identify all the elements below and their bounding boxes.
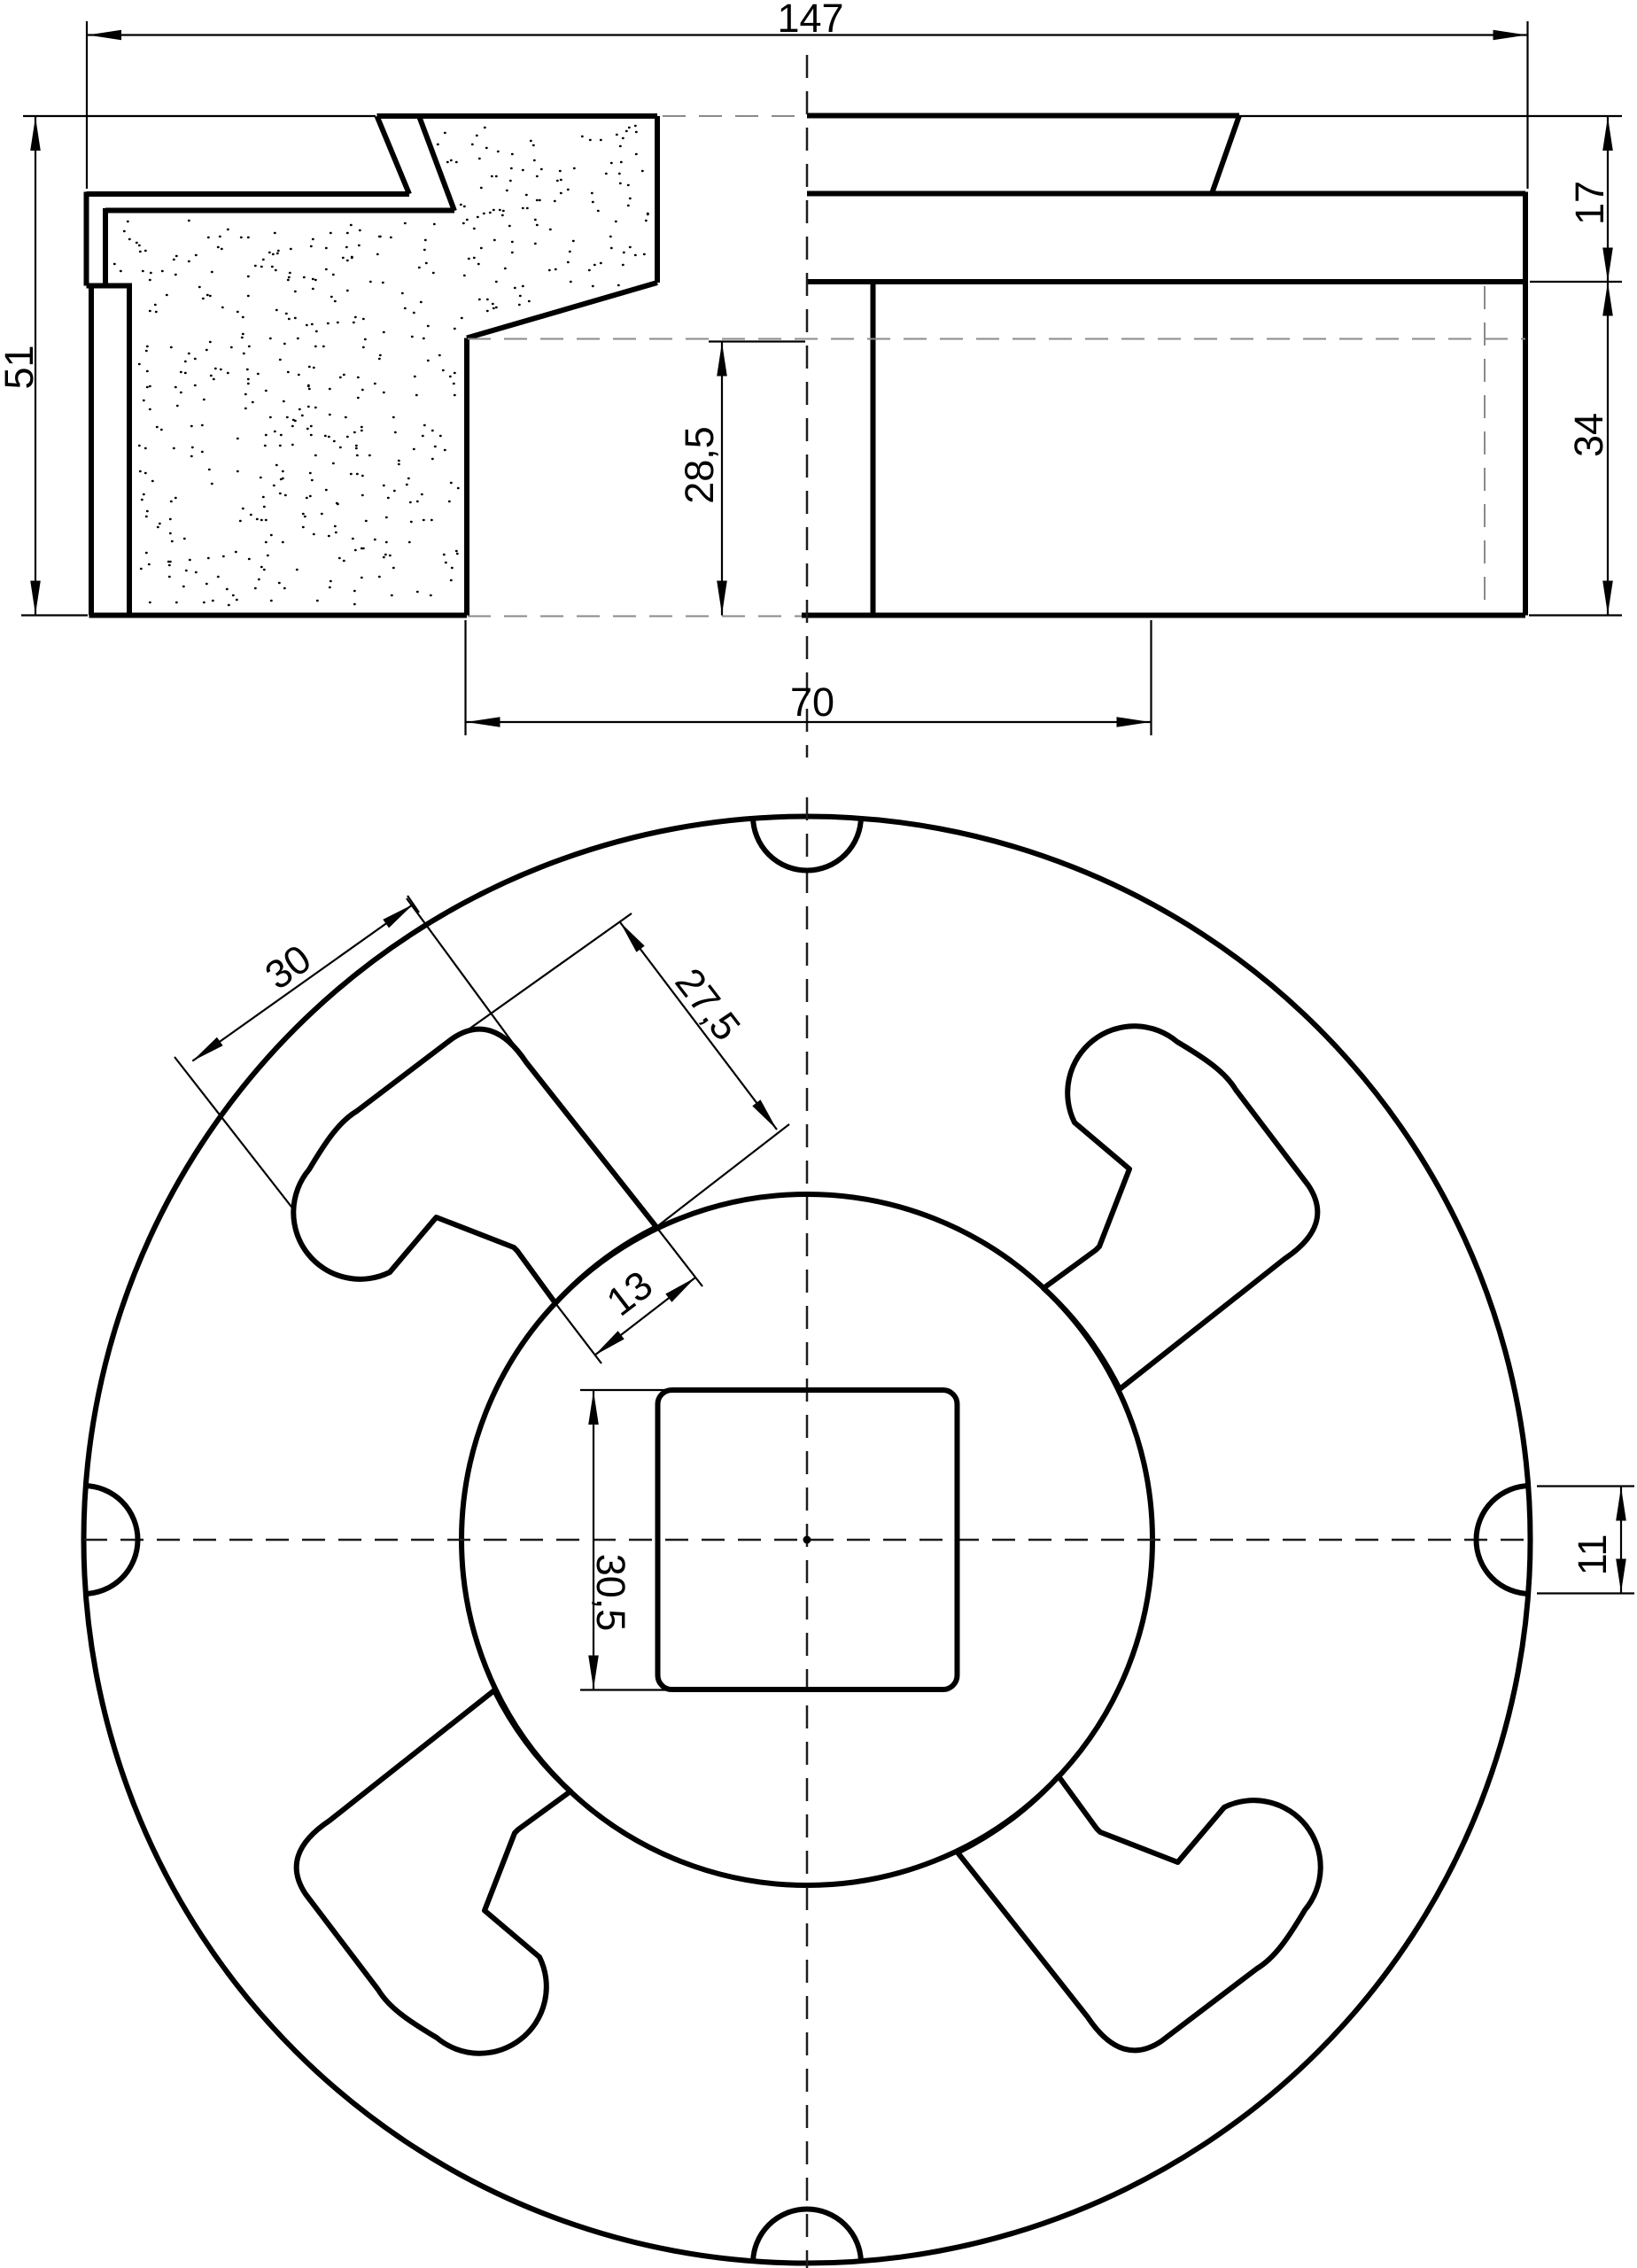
svg-text:11: 11	[1570, 1534, 1615, 1576]
svg-text:147: 147	[777, 0, 843, 41]
svg-text:30: 30	[257, 936, 319, 998]
svg-text:51: 51	[0, 345, 42, 389]
svg-text:30,5: 30,5	[588, 1554, 633, 1632]
svg-text:13: 13	[598, 1262, 661, 1324]
svg-text:70: 70	[790, 680, 834, 725]
svg-text:28,5: 28,5	[677, 426, 722, 504]
svg-text:17: 17	[1567, 181, 1612, 225]
svg-text:27,5: 27,5	[666, 959, 749, 1049]
svg-text:34: 34	[1566, 413, 1611, 457]
